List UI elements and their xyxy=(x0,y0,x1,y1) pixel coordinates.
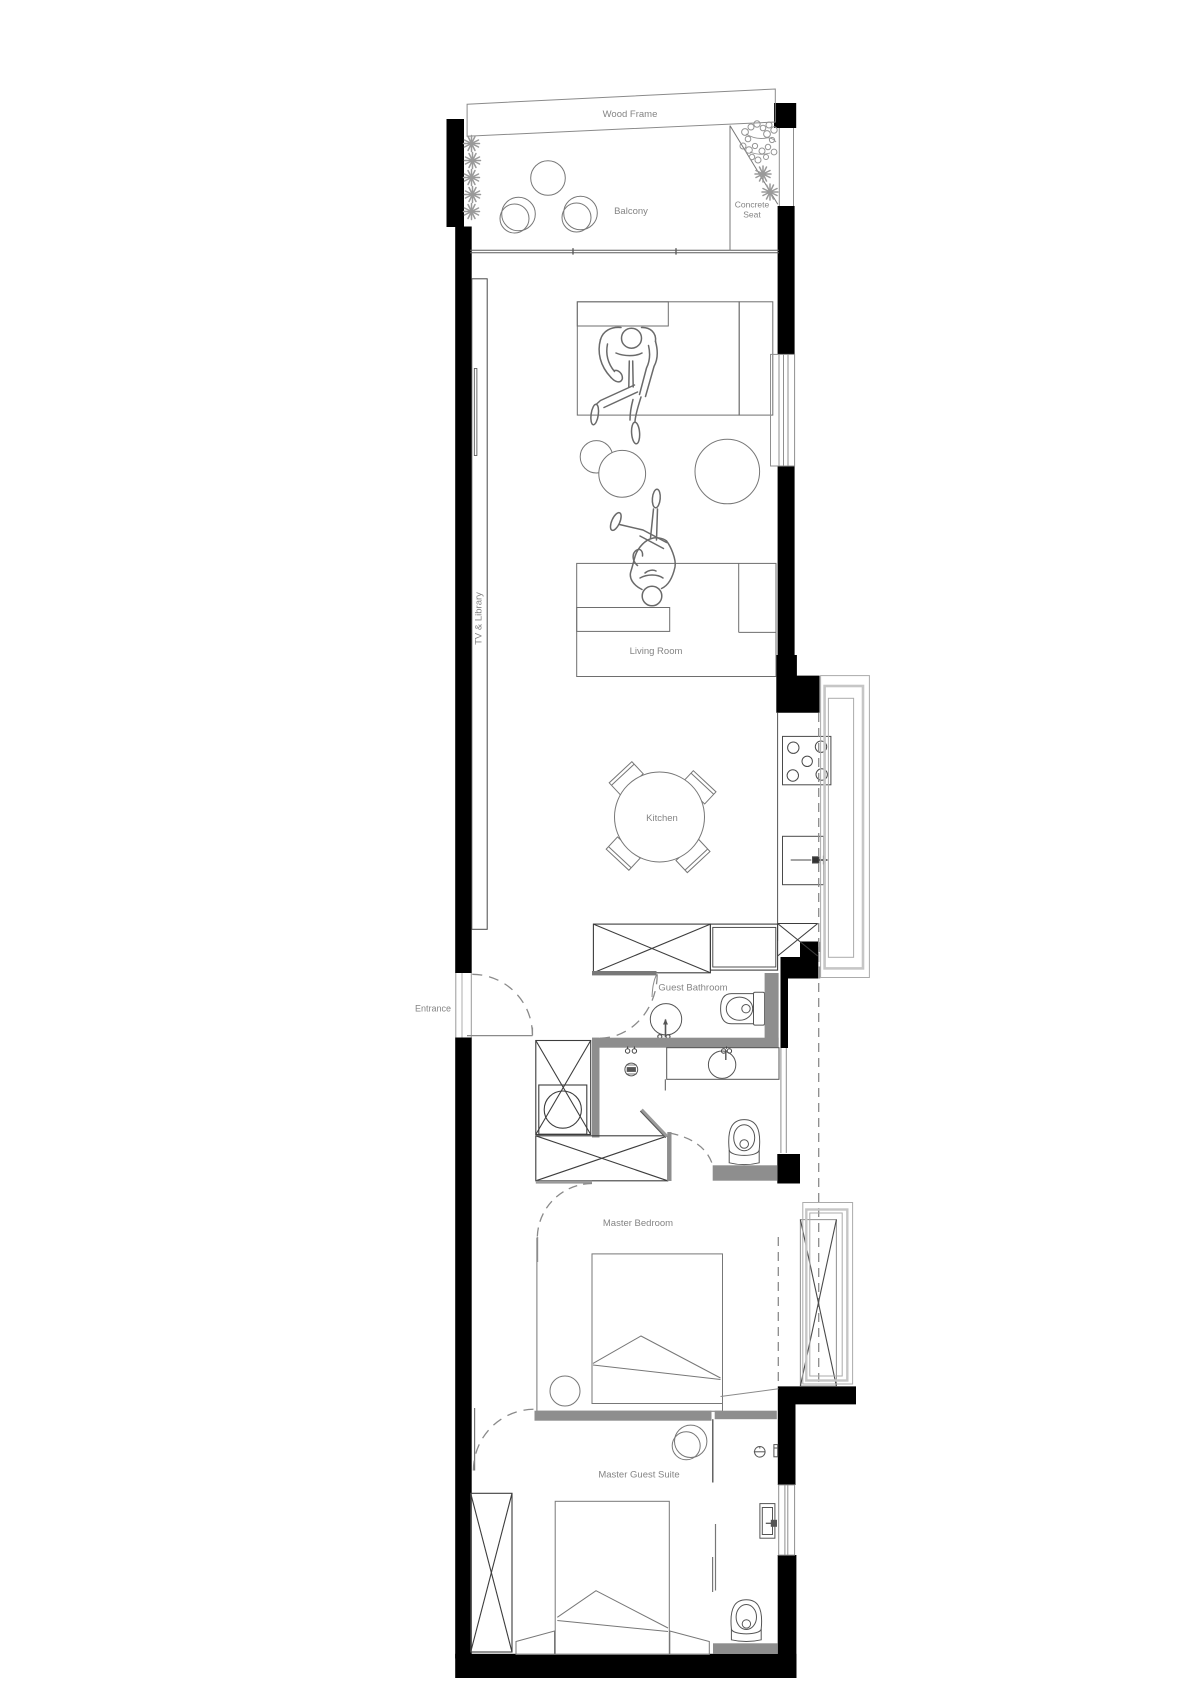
svg-text:Master Bedroom: Master Bedroom xyxy=(603,1218,673,1229)
svg-text:TV & Library: TV & Library xyxy=(474,592,485,645)
svg-text:Entrance: Entrance xyxy=(415,1004,451,1014)
svg-text:Kitchen: Kitchen xyxy=(646,813,678,824)
svg-text:Wood Frame: Wood Frame xyxy=(603,109,658,120)
svg-text:Concrete: Concrete xyxy=(735,200,770,210)
svg-text:Living Room: Living Room xyxy=(630,646,683,657)
svg-text:Balcony: Balcony xyxy=(614,206,648,217)
svg-text:Guest Bathroom: Guest Bathroom xyxy=(658,983,727,994)
svg-text:Master Guest Suite: Master Guest Suite xyxy=(598,1470,679,1481)
svg-text:Seat: Seat xyxy=(743,210,761,220)
